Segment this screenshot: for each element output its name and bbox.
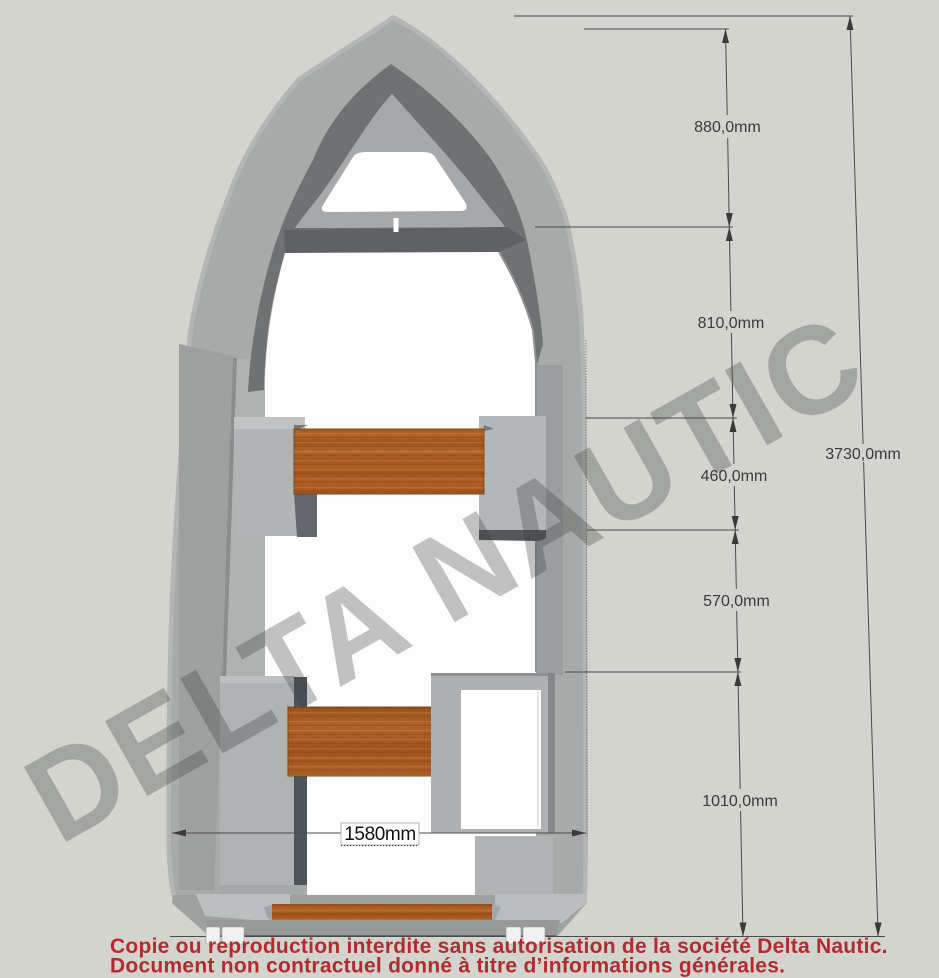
svg-text:880,0mm: 880,0mm: [694, 119, 761, 136]
svg-text:810,0mm: 810,0mm: [698, 315, 765, 332]
svg-text:570,0mm: 570,0mm: [703, 593, 770, 610]
svg-text:Document non contractuel donné: Document non contractuel donné à titre d…: [110, 955, 785, 978]
svg-text:1580mm: 1580mm: [344, 824, 416, 845]
svg-text:1010,0mm: 1010,0mm: [702, 793, 778, 810]
svg-text:460,0mm: 460,0mm: [701, 468, 768, 485]
svg-text:3730,0mm: 3730,0mm: [825, 446, 901, 463]
